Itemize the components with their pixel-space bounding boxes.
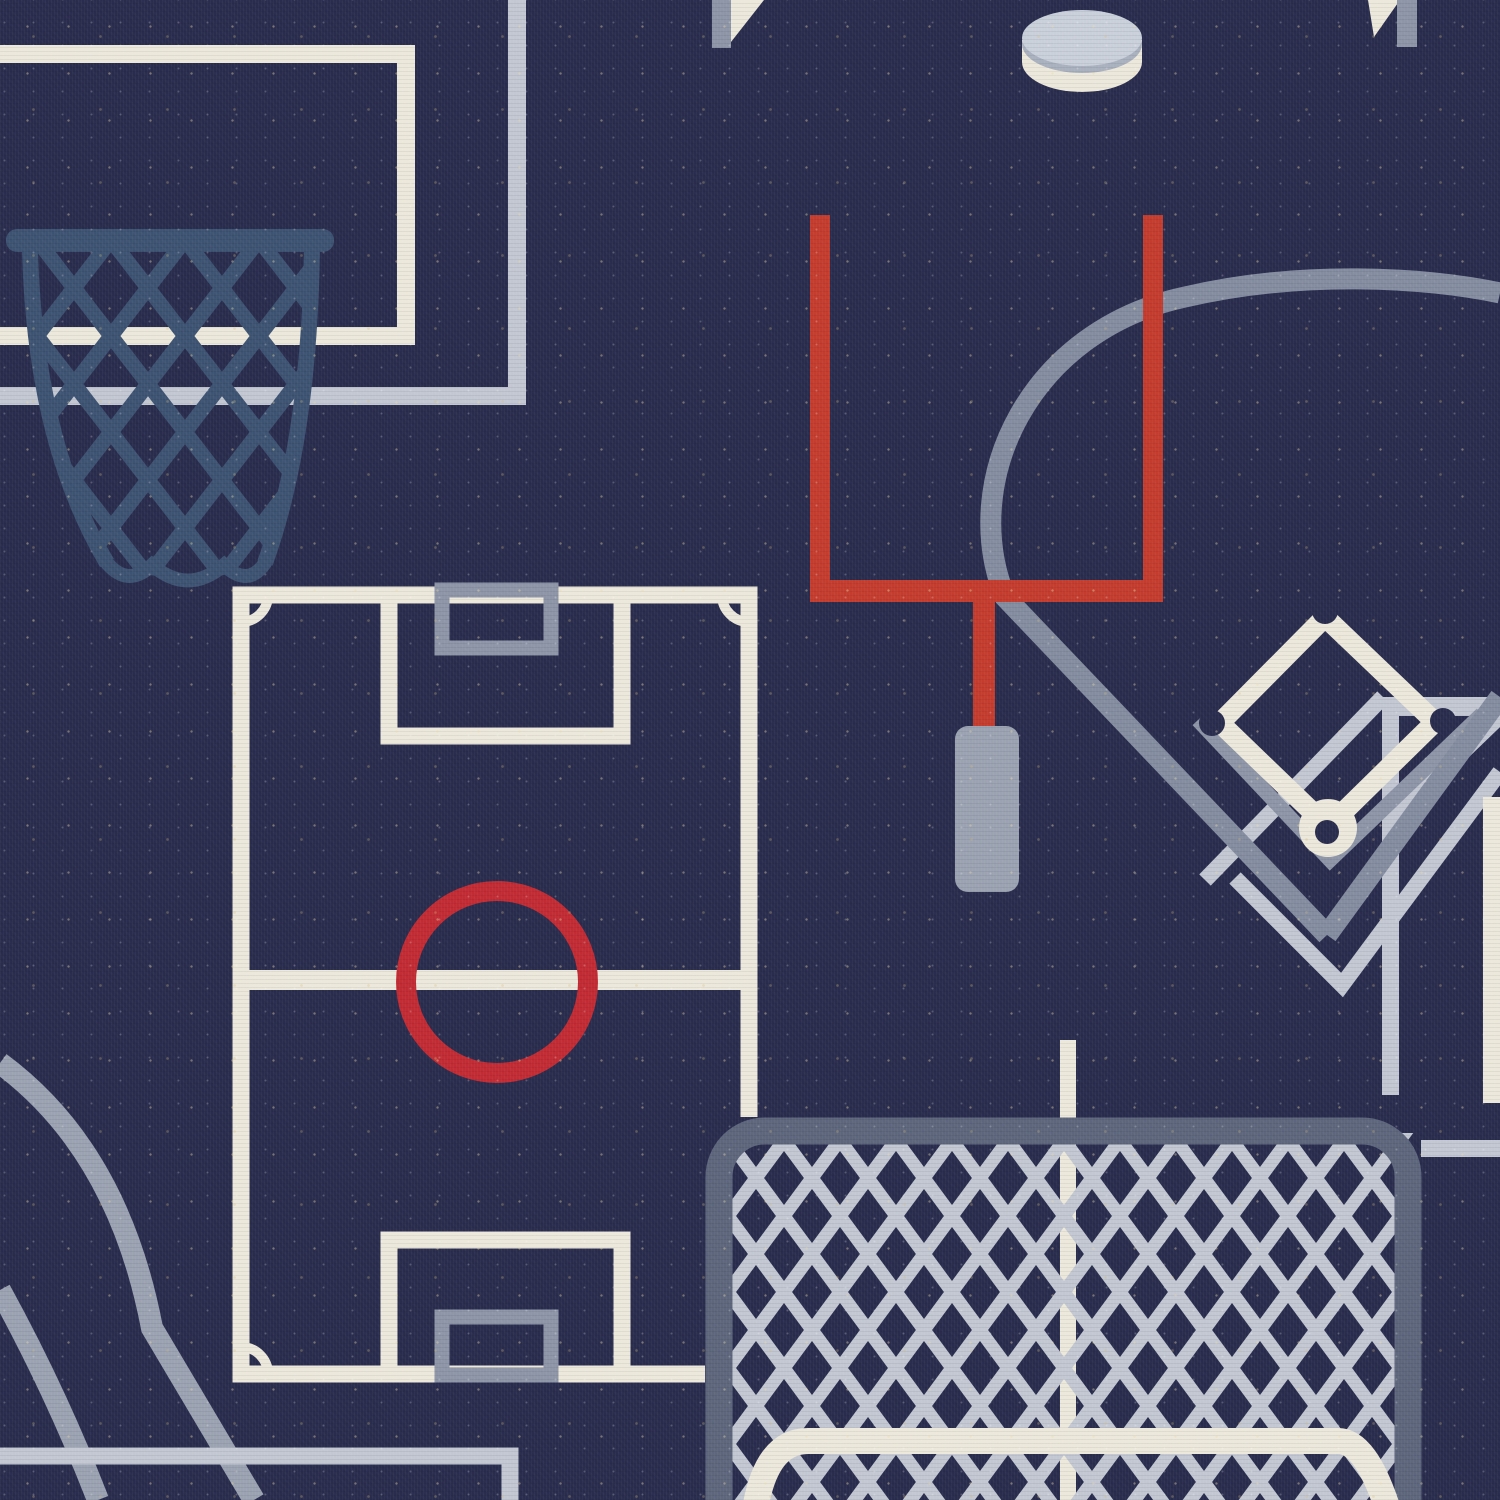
hockey-goal-group [705, 1040, 1421, 1500]
goalpost-crossbar [810, 580, 1163, 602]
puck-top-face [1022, 10, 1142, 66]
partial-light-bar-right-edge [1417, 1140, 1500, 1157]
pennant-pole-right [1397, 0, 1417, 47]
pennant-pole-center [712, 0, 731, 48]
pennant-partial-top-right [1368, 0, 1417, 47]
soccer-field-group [241, 590, 749, 1375]
soccer-penalty-box-bottom [389, 1240, 622, 1374]
baseball-home-plate-hole [1315, 820, 1339, 844]
sports-pattern-artwork [0, 0, 1500, 1500]
baseball-first-base-notch [1430, 708, 1456, 734]
baseball-field-group [991, 279, 1500, 1157]
soccer-penalty-box-top [389, 595, 622, 736]
pennant-flag-right [1368, 0, 1400, 37]
goalpost-left-upright [810, 215, 830, 602]
baseball-partial-bottom-left-group [0, 1063, 254, 1500]
baseball-outfield-boundary [991, 279, 1500, 935]
baseball-partial-outer-arc [0, 1063, 254, 1500]
baseball-third-base-notch [1199, 710, 1225, 736]
goalpost-pole [973, 602, 995, 732]
partial-white-bar-right-edge [1483, 797, 1500, 1103]
baseball-second-base-notch [1312, 598, 1338, 624]
pennant-flag-center [731, 0, 764, 42]
pennant-partial-top-center [712, 0, 764, 48]
basketball-hoop-group [0, 0, 517, 581]
goalpost-right-upright [1143, 215, 1163, 602]
baseball-partial-inner-arc [0, 1290, 98, 1500]
goalpost-base-pad [955, 726, 1019, 892]
pattern-scene [0, 0, 1500, 1500]
hockey-puck-group [1022, 10, 1142, 92]
